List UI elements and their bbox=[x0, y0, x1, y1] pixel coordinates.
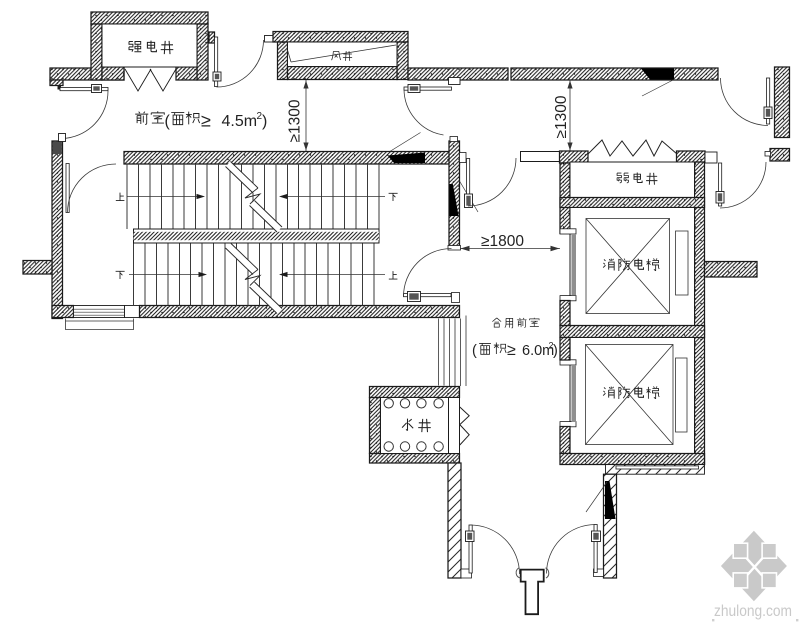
svg-text:4.5m: 4.5m bbox=[222, 113, 258, 130]
svg-text:≥1800: ≥1800 bbox=[481, 233, 524, 250]
svg-text:≥1300: ≥1300 bbox=[287, 99, 304, 142]
svg-text:zhulong.com: zhulong.com bbox=[714, 603, 792, 620]
svg-text:≥: ≥ bbox=[201, 111, 211, 131]
svg-text:(: ( bbox=[472, 343, 477, 359]
svg-text:≥1300: ≥1300 bbox=[553, 95, 570, 138]
svg-text:(: ( bbox=[165, 113, 171, 130]
svg-text:): ) bbox=[553, 343, 558, 359]
svg-text:): ) bbox=[262, 113, 267, 130]
svg-text:≥: ≥ bbox=[507, 342, 516, 359]
